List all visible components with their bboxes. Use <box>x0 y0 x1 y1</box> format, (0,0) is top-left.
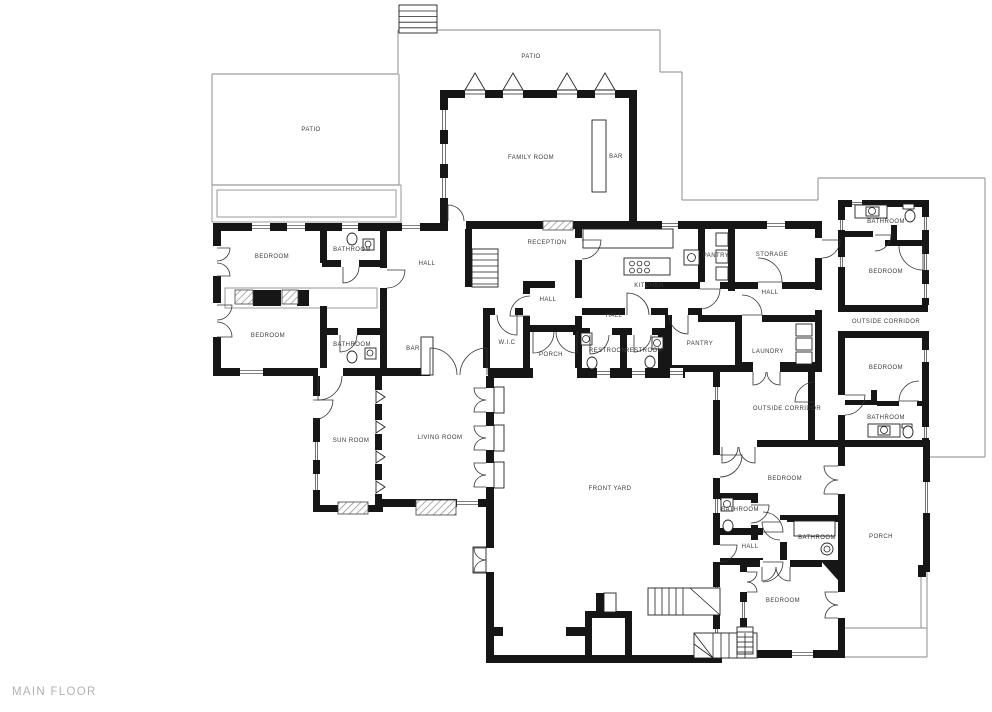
plan-title: MAIN FLOOR <box>12 686 97 698</box>
window <box>713 497 720 515</box>
window-tick <box>713 585 720 587</box>
door-swing <box>533 332 554 353</box>
window-tick <box>313 490 320 492</box>
door-swing <box>899 381 919 401</box>
door-swing <box>822 240 840 258</box>
window-tick <box>270 223 272 231</box>
door-opening <box>318 368 343 376</box>
burner-or-sink <box>645 268 650 273</box>
floor-plan-page: PATIOPATIOFAMILY ROOMBARBEDROOMBATHROOMH… <box>0 0 992 712</box>
window-tick <box>713 513 720 515</box>
window <box>250 223 272 231</box>
hatched-closet <box>543 221 573 230</box>
fixture-box <box>716 233 728 246</box>
window-tick <box>440 108 448 110</box>
wall <box>483 308 490 376</box>
wall <box>380 223 387 376</box>
hatched-closet <box>338 502 368 514</box>
fixture-box <box>494 462 504 488</box>
wall <box>917 401 924 406</box>
window-tick <box>813 650 815 658</box>
toilet <box>903 426 913 438</box>
window-tick <box>305 223 307 231</box>
burner-or-sink <box>583 336 590 343</box>
wall <box>596 593 604 612</box>
window <box>922 348 929 364</box>
window-tick <box>440 130 448 132</box>
door-swing <box>742 295 762 315</box>
wall <box>297 290 309 306</box>
door-opening <box>625 308 651 315</box>
wall <box>629 92 637 229</box>
window <box>630 368 647 378</box>
window-tick <box>250 223 252 231</box>
door-opening <box>575 238 582 260</box>
door-swing <box>474 388 486 400</box>
wall <box>253 290 281 306</box>
burner-or-sink <box>645 261 650 266</box>
door-swing <box>825 592 838 605</box>
window <box>595 368 612 378</box>
fixture-box <box>648 588 720 615</box>
window-tick <box>285 223 287 231</box>
window-tick <box>923 480 930 482</box>
window-tick <box>838 267 845 269</box>
wall <box>845 400 871 405</box>
wall <box>918 565 926 577</box>
burner-or-sink <box>630 268 635 273</box>
door-swing <box>753 372 766 385</box>
window-tick <box>668 368 670 378</box>
toilet <box>347 351 357 363</box>
window-tick <box>630 368 632 378</box>
door-opening <box>486 463 494 487</box>
door-swing <box>318 376 342 400</box>
fixture-box <box>794 521 835 536</box>
window-tick <box>610 368 612 378</box>
door-swing <box>825 605 838 618</box>
window-tick <box>713 627 720 629</box>
door-swing <box>824 480 838 494</box>
window <box>838 255 845 269</box>
door-opening <box>533 368 577 378</box>
wall <box>877 401 899 406</box>
burner-or-sink <box>881 427 888 434</box>
door-swing <box>762 522 780 540</box>
fixture-box <box>592 120 606 192</box>
wall <box>486 375 494 663</box>
door-opening <box>838 395 845 415</box>
window-tick <box>420 223 422 231</box>
window-tick <box>850 200 852 207</box>
hatched-closet <box>416 500 456 515</box>
door-opening <box>523 294 530 316</box>
window-tick <box>922 230 929 232</box>
window-tick <box>678 221 680 229</box>
window-tick <box>645 368 647 378</box>
window <box>790 650 815 658</box>
window-tick <box>340 223 342 231</box>
wall <box>838 440 930 447</box>
window <box>340 223 360 231</box>
burner-or-sink <box>688 254 696 262</box>
window-tick <box>922 298 929 300</box>
fixture-box <box>583 229 673 248</box>
fixture-box <box>399 5 437 33</box>
deck-outline <box>212 185 401 222</box>
door-swing <box>474 400 486 412</box>
wall <box>566 627 590 636</box>
door-swing <box>474 438 486 450</box>
door-swing <box>747 582 757 592</box>
door-opening <box>838 592 845 618</box>
window <box>400 223 422 231</box>
door-swing <box>899 246 923 270</box>
window-tick <box>440 164 448 166</box>
wall <box>871 390 877 405</box>
door-opening <box>430 368 488 376</box>
window <box>285 223 307 231</box>
door-opening <box>760 560 790 567</box>
door-opening <box>758 282 782 289</box>
toilet <box>347 233 357 245</box>
window-tick <box>923 513 930 515</box>
burner-or-sink <box>824 546 830 552</box>
door-swing <box>634 335 651 352</box>
door-opening <box>486 548 494 572</box>
folding-door-marker <box>557 73 577 90</box>
door-opening <box>313 396 320 418</box>
door-opening <box>341 260 359 267</box>
wall <box>465 221 472 287</box>
folding-door-marker <box>595 73 615 90</box>
window <box>238 368 265 376</box>
window-tick <box>478 499 480 507</box>
window-tick <box>838 218 845 220</box>
wall <box>845 231 873 237</box>
hatched-closet <box>282 290 298 304</box>
wall <box>523 281 555 288</box>
window-tick <box>313 460 320 462</box>
door-opening <box>448 221 466 229</box>
window-tick <box>263 368 265 376</box>
door-opening <box>486 426 494 450</box>
window-tick <box>440 176 448 178</box>
door-swing <box>824 466 838 480</box>
door-opening <box>713 545 720 562</box>
window-tick <box>922 362 929 364</box>
window-tick <box>765 221 767 229</box>
window <box>440 176 448 200</box>
window-tick <box>683 368 685 378</box>
wall <box>838 331 929 338</box>
window-tick <box>238 368 240 376</box>
fixture-box <box>903 204 914 209</box>
wall <box>838 338 845 447</box>
window-tick <box>922 438 929 440</box>
door-swing <box>767 372 780 385</box>
window-tick <box>922 282 929 284</box>
door-opening <box>815 238 822 258</box>
door-opening <box>740 572 747 592</box>
wall <box>891 225 897 240</box>
toilet <box>723 520 733 532</box>
door-opening <box>632 328 652 335</box>
door-swing <box>474 426 486 438</box>
burner-or-sink <box>630 261 635 266</box>
folding-door-marker <box>465 73 485 90</box>
wall <box>665 315 672 365</box>
window-tick <box>440 198 448 200</box>
door-opening <box>700 282 720 289</box>
window-tick <box>400 223 402 231</box>
window <box>455 499 480 507</box>
wall <box>885 240 929 246</box>
folding-door-marker <box>503 73 523 90</box>
door-opening <box>590 328 612 335</box>
wall <box>713 372 720 663</box>
door-swing <box>590 335 609 354</box>
door-swing <box>758 258 782 282</box>
door-swing <box>387 270 405 288</box>
burner-or-sink <box>654 340 661 347</box>
window-tick <box>740 600 747 602</box>
door-opening <box>720 440 757 447</box>
fixture-box <box>716 267 728 280</box>
wall-diagonal <box>820 560 845 588</box>
window-tick <box>713 385 720 387</box>
window-tick <box>922 215 929 217</box>
door-swing <box>340 335 357 352</box>
burner-or-sink <box>637 261 642 266</box>
door-swing <box>747 572 757 582</box>
door-opening <box>486 388 494 412</box>
door-swing <box>776 567 790 581</box>
toilet <box>645 356 655 368</box>
window <box>922 425 929 440</box>
door-opening <box>380 268 387 288</box>
window-tick <box>595 368 597 378</box>
door-swing <box>875 235 891 251</box>
door-swing <box>474 475 486 487</box>
window-tick <box>740 618 747 620</box>
door-swing <box>474 463 486 475</box>
wall <box>320 306 327 368</box>
wall <box>645 282 822 289</box>
window-tick <box>313 472 320 474</box>
window-tick <box>838 230 845 232</box>
window-tick <box>922 425 929 427</box>
window-tick <box>838 255 845 257</box>
wall <box>713 528 763 535</box>
door-swing <box>556 332 577 353</box>
door-swing <box>720 455 742 477</box>
fixture-box <box>494 425 504 451</box>
window <box>440 108 448 132</box>
floor-plan-canvas <box>0 0 992 712</box>
window-tick <box>713 400 720 402</box>
door-opening <box>742 315 762 322</box>
window <box>765 221 787 229</box>
fixture-box <box>796 338 812 350</box>
deck-outline <box>217 190 396 217</box>
door-opening <box>815 290 822 310</box>
wall <box>838 305 928 312</box>
wall <box>735 315 742 365</box>
wall <box>620 335 627 372</box>
openings-layer <box>213 90 930 658</box>
fixture-box <box>421 337 433 375</box>
window-tick <box>440 142 448 144</box>
window <box>923 480 930 515</box>
door-swing <box>448 205 464 221</box>
fixture-box <box>604 593 616 612</box>
burner-or-sink <box>365 241 371 247</box>
door-opening <box>838 466 845 494</box>
window-tick <box>358 223 360 231</box>
window <box>922 282 929 300</box>
fixture-box <box>472 249 498 287</box>
wall <box>728 229 735 291</box>
fixture-box <box>716 250 728 263</box>
door-opening <box>713 455 720 478</box>
toilet <box>905 210 915 222</box>
hatched-closet <box>235 290 253 304</box>
window <box>313 472 320 492</box>
burner-or-sink <box>637 268 642 273</box>
burner-or-sink <box>367 350 373 356</box>
fixture-box <box>494 387 504 413</box>
window <box>313 440 320 462</box>
door-swing <box>700 289 720 309</box>
door-opening <box>338 328 357 335</box>
door-opening <box>495 308 515 315</box>
door-opening <box>668 308 688 315</box>
burner-or-sink <box>869 208 876 215</box>
burner-or-sink <box>724 501 731 508</box>
wall <box>625 611 632 657</box>
window-tick <box>713 497 720 499</box>
toilet <box>587 357 597 369</box>
window <box>713 385 720 402</box>
window <box>660 221 680 229</box>
door-swing <box>497 315 517 335</box>
window <box>440 142 448 166</box>
door-opening <box>575 298 582 316</box>
fixture-box <box>796 352 812 364</box>
window <box>740 600 747 620</box>
window <box>668 368 685 378</box>
window <box>838 218 845 232</box>
fixture-box <box>796 324 812 336</box>
window-tick <box>660 221 662 229</box>
window <box>922 215 929 232</box>
window-tick <box>313 440 320 442</box>
door-swing <box>343 267 359 283</box>
wall <box>487 655 722 663</box>
wall <box>320 223 327 263</box>
window-tick <box>785 221 787 229</box>
window-tick <box>922 348 929 350</box>
window-tick <box>790 650 792 658</box>
